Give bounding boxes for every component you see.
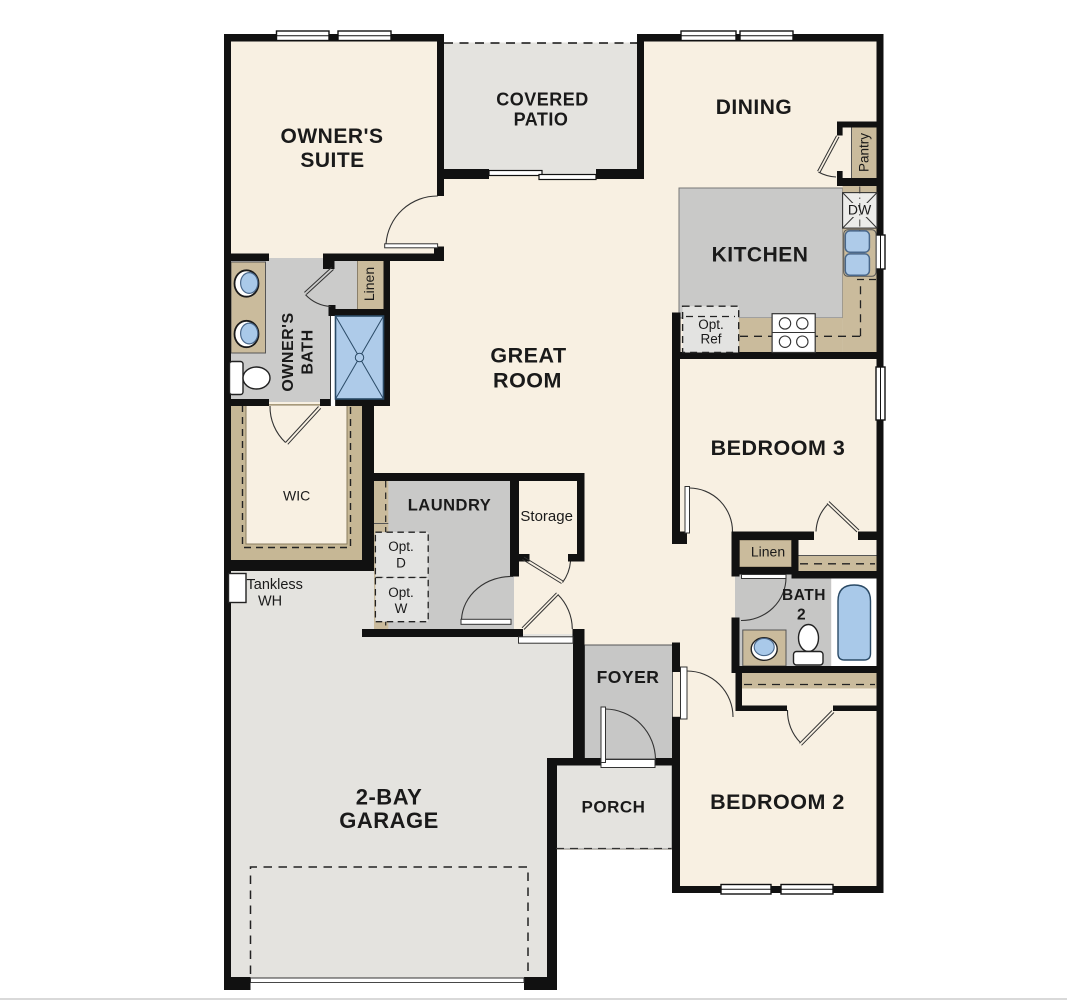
svg-text:D: D [396,556,406,571]
svg-text:ROOM: ROOM [493,369,562,393]
svg-text:2: 2 [797,607,806,624]
svg-text:KITCHEN: KITCHEN [712,244,809,267]
svg-text:LAUNDRY: LAUNDRY [408,497,492,515]
svg-text:Tankless: Tankless [247,577,303,593]
svg-text:GREAT: GREAT [490,344,566,368]
svg-text:Ref: Ref [700,332,721,347]
svg-text:PATIO: PATIO [514,110,569,130]
svg-text:2-BAY: 2-BAY [356,785,423,810]
svg-text:Opt.: Opt. [388,539,414,554]
svg-text:Opt.: Opt. [698,317,724,332]
svg-text:BEDROOM 3: BEDROOM 3 [711,436,846,460]
svg-text:OWNER'S: OWNER'S [280,312,297,391]
svg-text:W: W [395,601,408,616]
svg-text:PORCH: PORCH [582,798,646,817]
svg-text:DW: DW [848,202,872,218]
svg-text:SUITE: SUITE [300,149,364,172]
svg-text:BATH: BATH [300,329,317,374]
svg-text:FOYER: FOYER [597,667,660,687]
svg-text:Opt.: Opt. [388,585,414,600]
svg-text:DINING: DINING [716,96,793,119]
svg-text:GARAGE: GARAGE [339,808,439,833]
svg-text:WIC: WIC [283,488,310,504]
svg-text:Linen: Linen [751,544,785,560]
svg-text:Linen: Linen [361,267,377,301]
svg-text:Storage: Storage [520,508,573,525]
svg-text:BATH: BATH [782,587,826,604]
svg-text:WH: WH [258,594,282,610]
svg-text:BEDROOM 2: BEDROOM 2 [710,790,845,814]
svg-text:COVERED: COVERED [496,90,589,110]
svg-text:OWNER'S: OWNER'S [281,125,384,148]
svg-text:Pantry: Pantry [857,133,872,172]
